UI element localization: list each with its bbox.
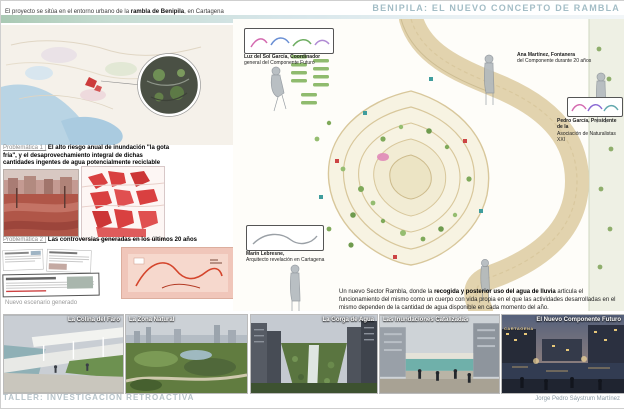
- sketch-panel-art: [122, 248, 234, 298]
- render-zona-natural-art: [126, 315, 247, 393]
- project-description: Un nuevo Sector Rambla, donde la recogid…: [339, 289, 623, 312]
- render-card-zona-natural: La Zona Natural: [125, 314, 248, 394]
- context-map-art: [1, 25, 236, 145]
- render-inundaciones-art: [380, 315, 499, 393]
- presentation-board: El proyecto se sitúa en el entorno urban…: [0, 0, 624, 409]
- caption-presidente-role: Asociación de Naturalistas XXI: [557, 131, 616, 143]
- news-clippings-art: [1, 248, 119, 298]
- render-label: La Colina del Faro: [68, 317, 120, 323]
- sketch-box-arquitecto-art: [247, 226, 323, 250]
- news-clippings: [1, 248, 119, 298]
- caption-coordinator-name: Luz del Sol García, Coordinador: [244, 54, 320, 60]
- poster-title: BENIPILA: EL NUEVO CONCEPTO DE RAMBLA: [372, 3, 620, 13]
- render-card-colina-faro: La Colina del Faro: [3, 314, 124, 394]
- problematica-1-label: Problemática 1 |: [3, 145, 46, 151]
- render-sublabel: CARTAGENA: [504, 326, 534, 331]
- problematica-1: Problemática 1 | El alto riesgo anual de…: [3, 145, 173, 168]
- sketch-box-arquitecto: [246, 225, 324, 251]
- render-label: Las Inundaciones Catalizadas: [383, 317, 468, 323]
- render-label: El Nuevo Componente Futuro: [536, 317, 621, 323]
- flood-photo-art: [4, 170, 78, 236]
- problematica-2: Problemática 2 | Las controversias gener…: [3, 237, 203, 245]
- problematica-2-label: Problemática 2 |: [3, 237, 46, 243]
- render-gorga-agua-art: [251, 315, 377, 393]
- caption-arquitecto: Marín Lebresne, Arquitecto revelación en…: [246, 251, 341, 264]
- render-label: La Gorga de Agua: [323, 317, 374, 323]
- render-label: La Zona Natural: [129, 317, 174, 323]
- flood-photo: [3, 169, 79, 237]
- caption-fontanera-role: del Componente durante 20 años: [517, 58, 591, 64]
- sketch-box-coordinator-art: [245, 29, 333, 53]
- figure-ground-art: [82, 167, 164, 239]
- caption-fontanera-name: Ana Martínez, Fontanera: [517, 52, 575, 58]
- caption-presidente: Pedro García, Presidente de la Asociació…: [557, 118, 623, 143]
- footer-author: Jorge Pedro Sáystrum Martínez: [535, 396, 620, 402]
- description-prefix: Un nuevo Sector Rambla, donde la: [339, 289, 434, 295]
- nuevo-escenario-label: Nuevo escenario generado: [5, 300, 77, 306]
- caption-arquitecto-role: Arquitecto revelación en Cartagena: [246, 257, 324, 263]
- problematica-2-text: Las controversias generadas en los últim…: [48, 237, 197, 243]
- footer-workshop: TALLER: INVESTIGACIÓN RETROACTIVA: [3, 393, 194, 402]
- sketch-box-presidente-art: [568, 98, 622, 116]
- caption-coordinator: Luz del Sol García, Coordinador general …: [244, 54, 339, 67]
- caption-fontanera: Ana Martínez, Fontanera del Componente d…: [517, 52, 612, 65]
- sketch-panel: [121, 247, 235, 299]
- caption-arquitecto-name: Marín Lebresne,: [246, 251, 284, 257]
- sketch-box-coordinator: [244, 28, 334, 54]
- render-card-componente-futuro: El Nuevo Componente Futuro CARTAGENA: [501, 314, 624, 394]
- figure-ground-map: [81, 166, 165, 240]
- caption-presidente-name: Pedro García, Presidente de la: [557, 118, 616, 130]
- render-card-gorga-agua: La Gorga de Agua: [250, 314, 378, 394]
- sketch-box-presidente: [567, 97, 623, 117]
- caption-coordinator-role: general del Componente Futuro: [244, 60, 315, 66]
- description-bold: recogida y posterior uso del agua de llu…: [434, 289, 556, 295]
- render-card-inundaciones: Las Inundaciones Catalizadas: [379, 314, 500, 394]
- render-colina-faro-art: [4, 315, 123, 393]
- context-map: [1, 25, 236, 145]
